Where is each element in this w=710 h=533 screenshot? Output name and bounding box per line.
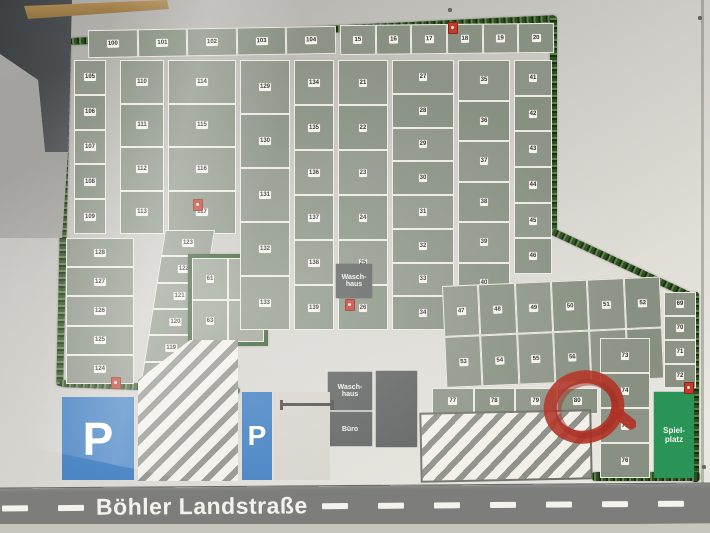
- plot-31: 31: [392, 195, 454, 229]
- plot-103: 103: [237, 27, 287, 56]
- plot-number: 61: [206, 275, 215, 283]
- plot-number: 123: [182, 239, 194, 247]
- plot-number: 27: [419, 73, 428, 81]
- plot-138: 138: [294, 240, 334, 285]
- plot-number: 112: [136, 165, 148, 173]
- plot-number: 138: [308, 259, 320, 267]
- plot-number: 45: [529, 217, 538, 225]
- plot-106: 106: [74, 95, 106, 130]
- office-building: Büro: [328, 412, 372, 446]
- plot-number: 49: [529, 303, 538, 311]
- screw-dot: [698, 16, 702, 20]
- plot-number: 121: [174, 292, 186, 300]
- plot-number: 54: [495, 356, 504, 364]
- plot-number: 73: [621, 352, 630, 360]
- playground-label: Spiel- platz: [663, 426, 685, 444]
- plot-45: 45: [514, 203, 552, 239]
- plot-number: 119: [165, 344, 177, 352]
- barrier-post-right: [331, 400, 334, 410]
- plot-number: 41: [529, 74, 538, 82]
- plot-number: 109: [84, 213, 96, 221]
- plot-number: 72: [676, 372, 685, 380]
- parking-letter: P: [83, 412, 114, 466]
- plot-number: 77: [448, 397, 457, 405]
- plot-100: 100: [88, 29, 138, 58]
- plot-number: 116: [196, 165, 208, 173]
- plot-number: 134: [308, 79, 320, 87]
- plot-number: 137: [308, 214, 320, 222]
- plot-number: 101: [156, 39, 168, 47]
- utility-building: [376, 371, 417, 447]
- plot-124: 124: [66, 355, 134, 384]
- plot-number: 111: [136, 121, 147, 129]
- plot-number: 26: [359, 304, 368, 312]
- plot-number: 120: [169, 318, 181, 326]
- plot-number: 33: [419, 275, 428, 283]
- fire-extinguisher-icon: [448, 22, 458, 34]
- road-dash: [602, 501, 628, 507]
- plot-43: 43: [514, 131, 552, 167]
- plot-number: 69: [676, 300, 685, 308]
- sign-edge-line: [701, 0, 704, 486]
- plot-number: 36: [480, 117, 489, 125]
- plot-49: 49: [515, 281, 554, 334]
- parking-area-west: P: [62, 397, 134, 480]
- plot-block-tl-col-a: 105106107108109: [74, 60, 106, 234]
- plot-number: 133: [259, 299, 271, 307]
- road-dash: [58, 505, 84, 511]
- plot-127: 127: [66, 267, 134, 296]
- plot-block-tl-col-b: 110111112113: [120, 60, 164, 234]
- plot-42: 42: [514, 96, 552, 132]
- plot-number: 56: [568, 353, 577, 361]
- plot-35: 35: [458, 60, 510, 101]
- plot-number: 52: [638, 299, 647, 307]
- fire-extinguisher-icon: [684, 382, 694, 394]
- plot-71: 71: [664, 340, 696, 364]
- plot-number: 19: [496, 34, 505, 42]
- plot-number: 21: [359, 79, 368, 87]
- fire-extinguisher-icon: [193, 199, 203, 211]
- plot-block-center-a: 129130131132133: [240, 60, 290, 330]
- plot-number: 30: [419, 174, 428, 182]
- plot-105: 105: [74, 60, 106, 95]
- plot-123: 123: [161, 230, 215, 256]
- plot-number: 38: [480, 198, 489, 206]
- plot-block-se-right: 69707172: [664, 292, 696, 388]
- plot-28: 28: [392, 94, 454, 128]
- road-dashes-left: [2, 505, 84, 512]
- plot-77: 77: [432, 388, 474, 414]
- plot-number: 125: [94, 336, 106, 344]
- plot-number: 102: [206, 38, 218, 46]
- plot-number: 18: [460, 35, 469, 43]
- plot-51: 51: [587, 278, 626, 331]
- plot-number: 22: [359, 124, 368, 132]
- plot-number: 31: [419, 208, 428, 216]
- plot-number: 131: [259, 191, 271, 199]
- plot-102: 102: [187, 28, 237, 57]
- plot-39: 39: [458, 222, 510, 263]
- plot-20: 20: [518, 23, 554, 53]
- playground-area: Spiel- platz: [654, 392, 694, 478]
- barrier-post-left: [280, 400, 283, 410]
- red-circle-annotation: [534, 362, 636, 460]
- plot-104: 104: [286, 26, 336, 55]
- plot-107: 107: [74, 130, 106, 165]
- plot-128: 128: [66, 238, 134, 267]
- plot-number: 63: [206, 317, 215, 325]
- plot-number: 114: [196, 78, 208, 86]
- road-dash: [434, 502, 460, 508]
- road-dashes-right: [322, 500, 710, 509]
- plot-number: 24: [359, 214, 368, 222]
- plot-number: 50: [566, 302, 575, 310]
- plot-111: 111: [120, 104, 164, 148]
- plot-number: 28: [419, 107, 428, 115]
- plot-number: 135: [308, 124, 320, 132]
- road-dash: [378, 503, 404, 509]
- plot-22: 22: [338, 105, 388, 150]
- plot-number: 32: [419, 242, 428, 250]
- plot-number: 126: [94, 307, 106, 315]
- plot-number: 130: [259, 137, 271, 145]
- plot-number: 129: [259, 83, 271, 91]
- plot-number: 113: [136, 208, 148, 216]
- plot-41: 41: [514, 60, 552, 96]
- plot-number: 105: [84, 73, 96, 81]
- plot-number: 127: [94, 278, 106, 286]
- screw-dot: [702, 465, 706, 469]
- plot-130: 130: [240, 114, 290, 168]
- plot-50: 50: [551, 280, 590, 333]
- plot-number: 108: [84, 178, 96, 186]
- plot-number: 132: [259, 245, 271, 253]
- plot-116: 116: [168, 147, 236, 191]
- plot-113: 113: [120, 191, 164, 235]
- plot-126: 126: [66, 296, 134, 325]
- plot-137: 137: [294, 195, 334, 240]
- plot-108: 108: [74, 164, 106, 199]
- plot-block-east-3: 353637383940: [458, 60, 510, 303]
- plot-number: 34: [419, 309, 428, 317]
- entrance-barrier-icon: [280, 400, 334, 410]
- plot-number: 70: [676, 324, 685, 332]
- plot-block-east-4: 414243444546: [514, 60, 552, 274]
- fire-extinguisher-icon: [345, 299, 355, 311]
- road-dash: [658, 501, 684, 507]
- plot-number: 47: [457, 306, 466, 314]
- plot-number: 115: [196, 121, 208, 129]
- plot-112: 112: [120, 147, 164, 191]
- plot-number: 15: [353, 36, 362, 44]
- plot-number: 51: [602, 300, 611, 308]
- plot-number: 23: [359, 169, 368, 177]
- washhouse-lower: Wasch- haus: [328, 372, 372, 410]
- plot-number: 139: [308, 304, 320, 312]
- plot-101: 101: [137, 28, 187, 57]
- plot-23: 23: [338, 150, 388, 195]
- road-band: Böhler Landstraße: [0, 483, 710, 528]
- parking-letter: P: [248, 420, 267, 452]
- plot-46: 46: [514, 238, 552, 274]
- plot-139: 139: [294, 285, 334, 330]
- road-dash: [490, 502, 516, 508]
- plot-133: 133: [240, 276, 290, 330]
- plot-61: 61: [192, 258, 228, 300]
- plot-number: 124: [94, 365, 106, 373]
- washhouse-upper: Wasch- haus: [336, 264, 372, 298]
- plot-number: 37: [480, 157, 489, 165]
- plot-70: 70: [664, 316, 696, 340]
- plot-number: 44: [529, 181, 538, 189]
- plot-134: 134: [294, 60, 334, 105]
- washhouse-lower-label: Wasch- haus: [338, 384, 363, 398]
- plot-21: 21: [338, 60, 388, 105]
- plot-125: 125: [66, 326, 134, 355]
- plot-number: 43: [529, 145, 538, 153]
- plot-number: 100: [107, 40, 119, 48]
- plot-27: 27: [392, 60, 454, 94]
- plot-number: 35: [480, 76, 489, 84]
- plot-115: 115: [168, 104, 236, 148]
- washhouse-upper-label: Wasch- haus: [342, 274, 367, 288]
- plot-129: 129: [240, 60, 290, 114]
- plot-17: 17: [411, 24, 447, 54]
- plot-24: 24: [338, 195, 388, 240]
- parking-area-center: P: [242, 392, 272, 480]
- plot-48: 48: [478, 283, 517, 336]
- plot-110: 110: [120, 60, 164, 104]
- plot-132: 132: [240, 222, 290, 276]
- plot-44: 44: [514, 167, 552, 203]
- barrier-bar: [280, 403, 334, 406]
- plot-114: 114: [168, 60, 236, 104]
- plot-47: 47: [442, 284, 481, 337]
- plot-number: 128: [94, 249, 106, 257]
- plot-number: 53: [459, 357, 468, 365]
- plot-block-center-b: 134135136137138139: [294, 60, 334, 330]
- road-dash: [2, 505, 28, 511]
- plot-number: 107: [84, 143, 96, 151]
- plot-number: 71: [676, 348, 685, 356]
- plot-63: 63: [192, 300, 228, 342]
- plot-131: 131: [240, 168, 290, 222]
- plot-number: 104: [305, 36, 317, 44]
- fire-extinguisher-icon: [111, 377, 121, 389]
- office-label: Büro: [342, 426, 358, 433]
- plot-number: 106: [84, 108, 96, 116]
- plot-15: 15: [340, 25, 376, 55]
- plot-36: 36: [458, 101, 510, 142]
- plot-number: 29: [419, 140, 428, 148]
- plot-19: 19: [483, 23, 519, 53]
- road-dash: [546, 501, 572, 507]
- plot-53: 53: [444, 335, 483, 388]
- plot-136: 136: [294, 150, 334, 195]
- plot-number: 39: [480, 238, 489, 246]
- plot-54: 54: [481, 334, 520, 387]
- plot-number: 48: [493, 305, 502, 313]
- road-dash: [322, 503, 348, 509]
- plot-number: 136: [308, 169, 320, 177]
- plot-38: 38: [458, 182, 510, 223]
- plot-32: 32: [392, 229, 454, 263]
- plot-69: 69: [664, 292, 696, 316]
- plot-16: 16: [376, 24, 412, 54]
- plot-block-left-lower: 128127126125124: [66, 238, 134, 384]
- road-shoulder: [0, 524, 710, 533]
- plot-number: 103: [255, 37, 267, 45]
- plot-number: 42: [529, 110, 538, 118]
- plot-number: 16: [389, 36, 398, 44]
- plot-block-top-row-west: 100101102103104: [88, 26, 336, 58]
- plot-37: 37: [458, 141, 510, 182]
- plot-number: 46: [529, 252, 538, 260]
- plot-29: 29: [392, 128, 454, 162]
- plot-117: 117: [168, 191, 236, 235]
- plot-52: 52: [623, 276, 662, 329]
- screw-dot: [448, 8, 452, 12]
- plot-number: 110: [136, 78, 148, 86]
- plot-135: 135: [294, 105, 334, 150]
- plot-30: 30: [392, 161, 454, 195]
- plot-number: 17: [425, 35, 434, 43]
- plot-number: 78: [490, 397, 499, 405]
- campground-map-sign: 100101102103104 151617181920 10510610710…: [0, 0, 710, 533]
- plot-number: 20: [532, 34, 541, 42]
- plot-block-top-row-east: 151617181920: [340, 23, 554, 55]
- plot-109: 109: [74, 199, 106, 234]
- road-name-label: Böhler Landstraße: [96, 492, 308, 520]
